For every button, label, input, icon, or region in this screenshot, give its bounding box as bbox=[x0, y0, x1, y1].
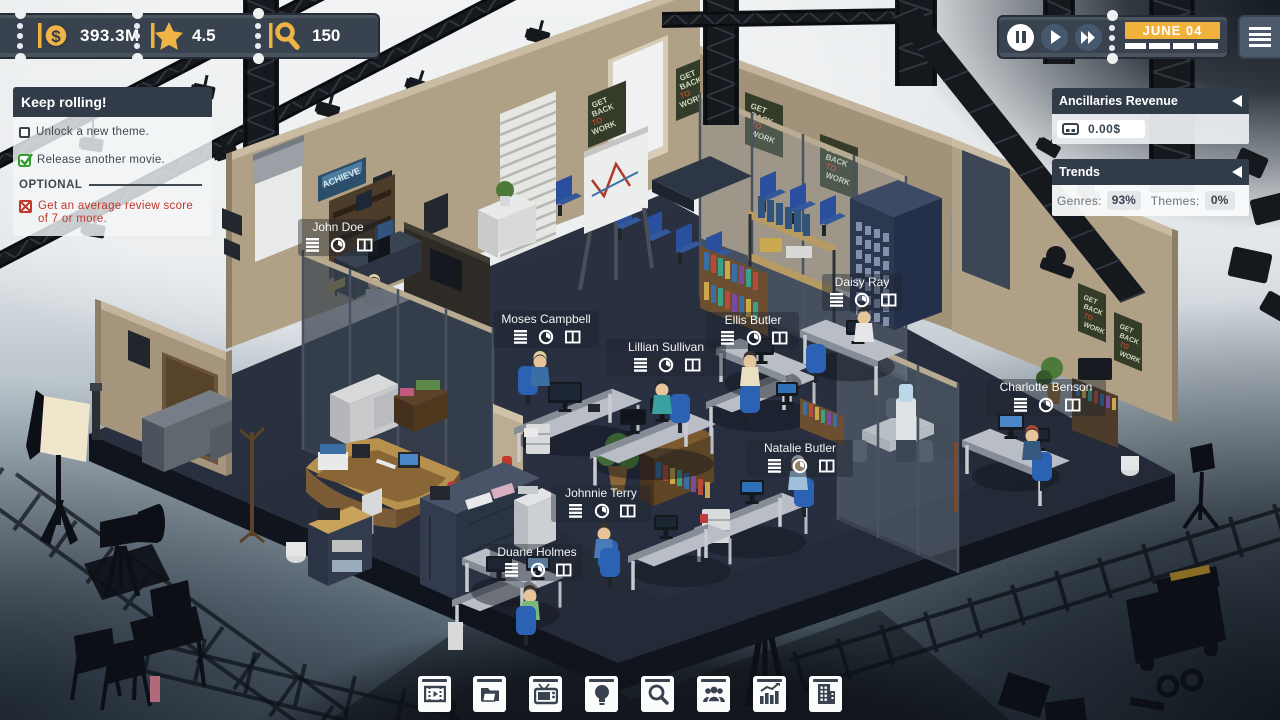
svg-text:Lillian Sullivan: Lillian Sullivan bbox=[628, 340, 704, 354]
svg-text:Daisy Ray: Daisy Ray bbox=[835, 275, 890, 289]
svg-text:John Doe: John Doe bbox=[312, 220, 364, 234]
svg-text:Moses Campbell: Moses Campbell bbox=[501, 312, 590, 326]
svg-text:Duane Holmes: Duane Holmes bbox=[497, 545, 576, 559]
svg-text:Ellis Butler: Ellis Butler bbox=[725, 313, 782, 327]
svg-text:Natalie Butler: Natalie Butler bbox=[764, 441, 836, 455]
svg-text:$: $ bbox=[51, 27, 61, 46]
svg-text:Johnnie Terry: Johnnie Terry bbox=[565, 486, 637, 500]
svg-text:Charlotte Benson: Charlotte Benson bbox=[1000, 380, 1093, 394]
